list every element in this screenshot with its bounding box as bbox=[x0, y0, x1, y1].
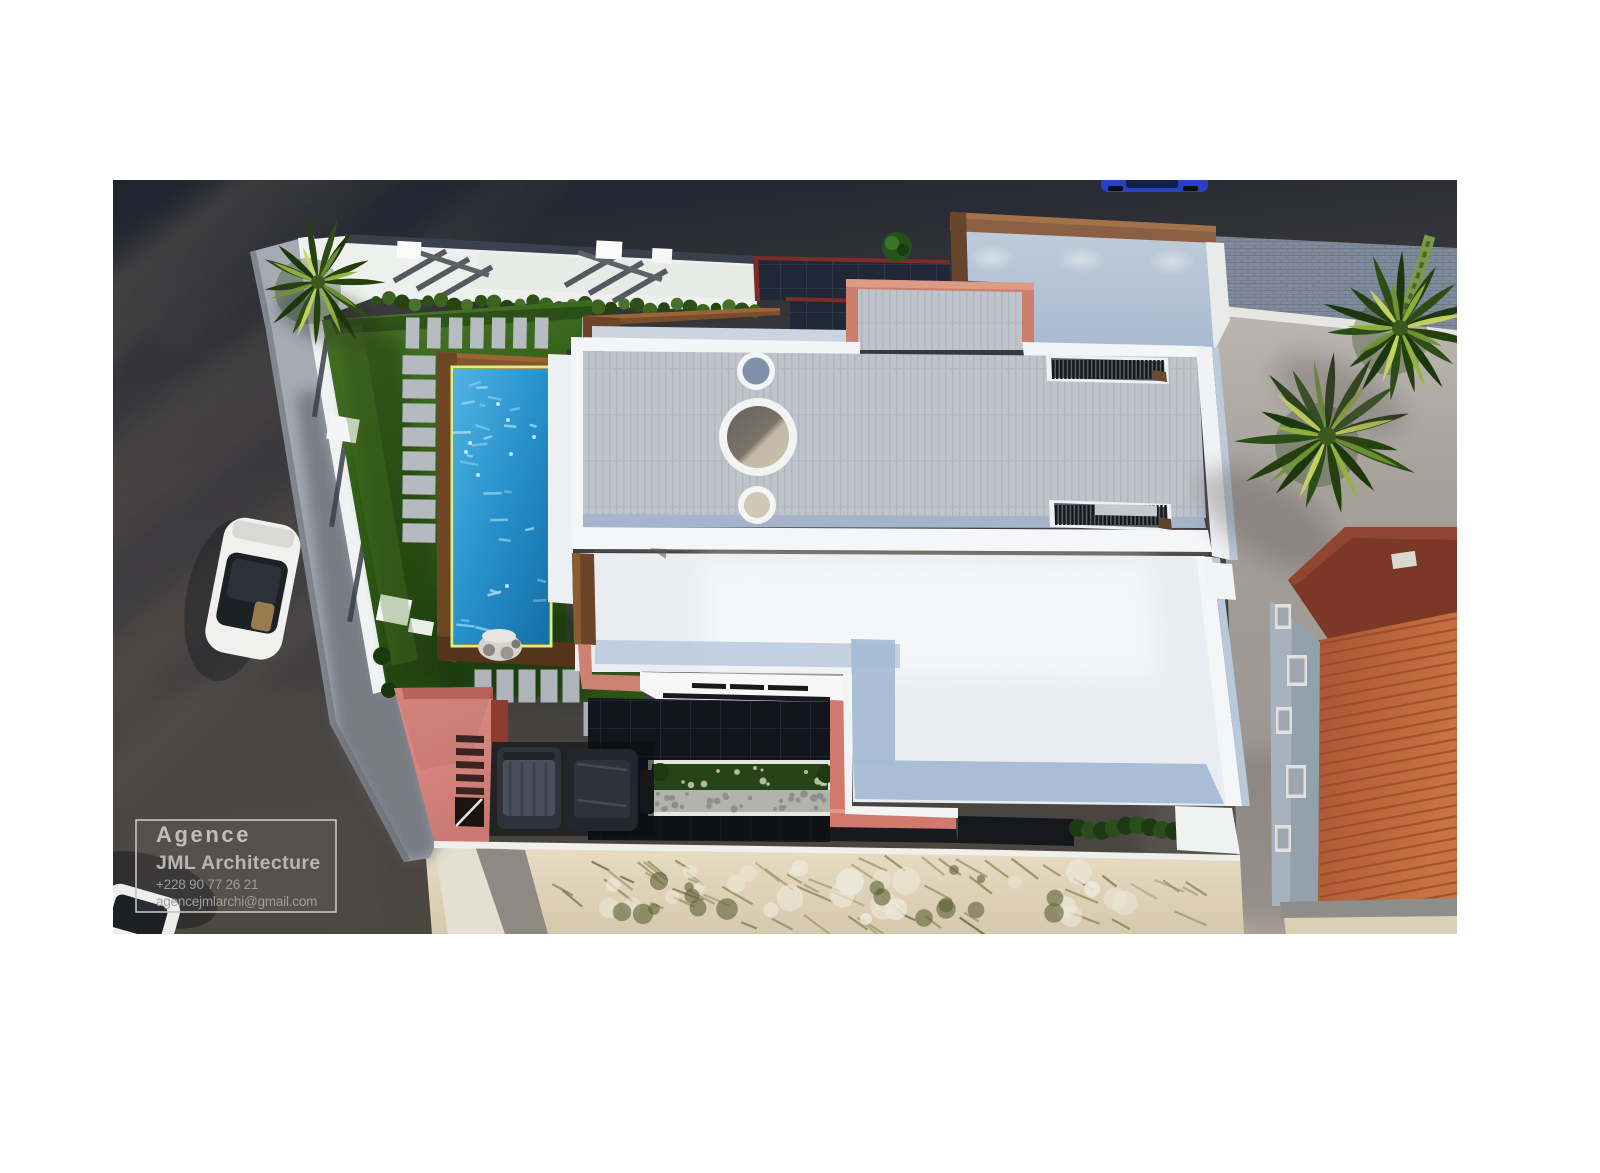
svg-text:+228 90 77 26 21: +228 90 77 26 21 bbox=[156, 877, 258, 892]
svg-text:Agence: Agence bbox=[156, 822, 251, 847]
svg-text:agencejmlarchi@gmail.com: agencejmlarchi@gmail.com bbox=[156, 894, 317, 909]
svg-text:JML Architecture: JML Architecture bbox=[156, 852, 321, 874]
